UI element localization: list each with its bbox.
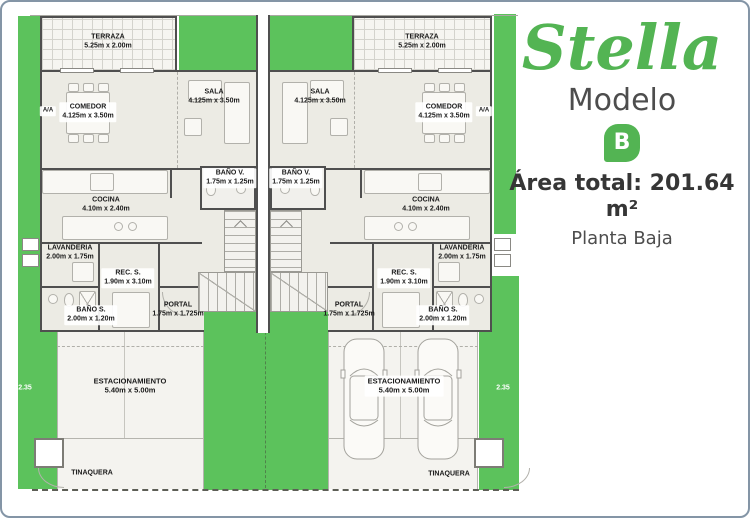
total-area-text: Área total: 201.64 m² xyxy=(502,171,742,223)
chair xyxy=(424,134,435,143)
room-label-terraza-left: TERRAZA 5.25m x 2.00m xyxy=(84,33,131,51)
driveway-left xyxy=(57,332,204,489)
ac-condenser xyxy=(22,254,39,267)
stairs-winder-left xyxy=(198,272,256,312)
room-label-tinaquera-left: TINAQUERA xyxy=(71,470,113,479)
parking-dashed-line xyxy=(57,346,204,347)
door-swing xyxy=(504,468,530,488)
room-name: ESTACIONAMIENTO xyxy=(94,377,167,386)
room-label-tinaquera-right: TINAQUERA xyxy=(428,471,470,480)
room-name: BAÑO S. xyxy=(419,306,466,315)
room-label-terraza-right: TERRAZA 5.25m x 2.00m xyxy=(398,33,445,51)
car-top-view xyxy=(340,336,388,462)
room-label-lavanderia-right: LAVANDERIA 2.00m x 1.75m xyxy=(438,244,485,262)
room-label-portal-right: PORTAL 1.75m x 1.725m xyxy=(323,301,374,319)
room-dims: 1.90m x 3.10m xyxy=(104,278,151,287)
room-name: SALA xyxy=(188,88,239,97)
chair xyxy=(68,83,79,92)
washer xyxy=(72,262,94,282)
tinaquera-closet-left xyxy=(34,438,64,468)
room-dims: 1.75m x 1.725m xyxy=(152,310,203,319)
model-label: Modelo xyxy=(502,84,742,118)
room-label-bano-v-left: BAÑO V. 1.75m x 1.25m xyxy=(203,168,256,188)
wall xyxy=(432,286,492,288)
floorplan-canvas: TERRAZA 5.25m x 2.00m COMEDOR 4.125m x 3… xyxy=(0,0,750,518)
room-name: LAVANDERIA xyxy=(46,244,93,253)
room-dims: 5.25m x 2.00m xyxy=(84,42,131,51)
room-label-bano-v-right: BAÑO V. 1.75m x 1.25m xyxy=(269,168,322,188)
parking-line xyxy=(57,438,204,439)
room-name: TINAQUERA xyxy=(428,471,470,480)
room-name: ESTACIONAMIENTO xyxy=(368,377,441,386)
chair xyxy=(68,134,79,143)
lot-boundary-front xyxy=(32,489,519,491)
chair xyxy=(98,134,109,143)
chair xyxy=(98,83,109,92)
chair xyxy=(454,83,465,92)
room-dims: 1.90m x 3.10m xyxy=(380,278,427,287)
room-label-cocina-left: COCINA 4.10m x 2.40m xyxy=(82,196,129,214)
room-dims: 5.40m x 5.00m xyxy=(94,386,167,395)
dimension-marker-right: 2.35 xyxy=(496,385,510,392)
room-label-bano-s-left: BAÑO S. 2.00m x 1.20m xyxy=(64,305,117,325)
window-mark xyxy=(60,68,94,73)
room-name: REC. S. xyxy=(380,269,427,278)
garden-top-left xyxy=(179,16,256,71)
washer xyxy=(438,262,460,282)
room-label-comedor-right: COMEDOR 4.125m x 3.50m xyxy=(415,102,472,122)
sink xyxy=(408,222,417,231)
chair xyxy=(454,134,465,143)
room-dims: 5.40m x 5.00m xyxy=(368,386,441,395)
room-name: PORTAL xyxy=(152,301,203,310)
room-label-lavanderia-left: LAVANDERIA 2.00m x 1.75m xyxy=(46,244,93,262)
room-name: TERRAZA xyxy=(398,33,445,42)
room-label-aa-right: A/A xyxy=(476,106,492,116)
room-name: BAÑO V. xyxy=(272,169,319,178)
garden-top-right xyxy=(269,16,352,71)
room-name: BAÑO S. xyxy=(67,306,114,315)
model-letter-badge: B xyxy=(604,124,640,162)
room-label-estacionamiento-left: ESTACIONAMIENTO 5.40m x 5.00m xyxy=(94,377,167,396)
room-label-estacionamiento-right: ESTACIONAMIENTO 5.40m x 5.00m xyxy=(365,376,444,397)
room-label-aa-left: A/A xyxy=(40,106,56,116)
room-dims: 4.125m x 3.50m xyxy=(294,97,345,106)
room-name: COCINA xyxy=(402,196,449,205)
room-label-sala-right: SALA 4.125m x 3.50m xyxy=(294,88,345,106)
chair xyxy=(424,83,435,92)
room-dims: 4.10m x 2.40m xyxy=(82,205,129,214)
room-dims: 1.75m x 1.725m xyxy=(323,310,374,319)
room-name: COMEDOR xyxy=(418,103,469,112)
room-divider-dashed xyxy=(177,72,178,168)
room-name: COMEDOR xyxy=(62,103,113,112)
room-dims: 1.75m x 1.25m xyxy=(206,178,253,187)
room-dims: 4.10m x 2.40m xyxy=(402,205,449,214)
car-top-view xyxy=(414,336,462,462)
brand-name: Stella xyxy=(502,12,742,84)
armchair xyxy=(330,118,348,136)
room-dims: 4.125m x 3.50m xyxy=(188,97,239,106)
wall xyxy=(360,170,362,198)
chair xyxy=(83,83,94,92)
room-name: REC. S. xyxy=(104,269,151,278)
room-name: A/A xyxy=(43,107,53,115)
room-label-cocina-right: COCINA 4.10m x 2.40m xyxy=(402,196,449,214)
sink xyxy=(394,222,403,231)
room-label-rec-s-left: REC. S. 1.90m x 3.10m xyxy=(101,268,154,288)
sink xyxy=(474,294,484,304)
room-divider-dashed xyxy=(354,72,355,168)
room-dims: 2.00m x 1.20m xyxy=(67,315,114,324)
room-dims: 5.25m x 2.00m xyxy=(398,42,445,51)
sink xyxy=(48,294,58,304)
wall xyxy=(40,286,100,288)
room-label-sala-left: SALA 4.125m x 3.50m xyxy=(188,88,239,106)
room-label-bano-s-right: BAÑO S. 2.00m x 1.20m xyxy=(416,305,469,325)
title-panel: Stella Modelo B Área total: 201.64 m² Pl… xyxy=(502,12,742,250)
wall xyxy=(328,286,374,288)
room-label-rec-s-right: REC. S. 1.90m x 3.10m xyxy=(377,268,430,288)
party-wall xyxy=(256,15,270,333)
tinaquera-closet-right xyxy=(474,438,504,468)
window-mark xyxy=(378,68,412,73)
stove xyxy=(90,173,114,191)
ac-condenser xyxy=(494,254,511,267)
room-name: A/A xyxy=(479,107,489,115)
kitchen-island xyxy=(364,216,470,240)
dimension-marker-left: 2.35 xyxy=(18,385,32,392)
floor-level-text: Planta Baja xyxy=(502,228,742,250)
ac-condenser xyxy=(22,238,39,251)
stairs-winder-right xyxy=(270,272,328,312)
armchair xyxy=(184,118,202,136)
bed xyxy=(112,292,150,328)
room-dims: 2.00m x 1.20m xyxy=(419,315,466,324)
room-name: COCINA xyxy=(82,196,129,205)
wall xyxy=(170,170,172,198)
room-name: PORTAL xyxy=(323,301,374,310)
room-dims: 2.00m x 1.75m xyxy=(438,253,485,262)
room-label-portal-left: PORTAL 1.75m x 1.725m xyxy=(152,301,203,319)
room-dims: 2.00m x 1.75m xyxy=(46,253,93,262)
chair xyxy=(83,134,94,143)
window-mark xyxy=(438,68,472,73)
sink xyxy=(128,222,137,231)
room-name: BAÑO V. xyxy=(206,169,253,178)
chair xyxy=(439,134,450,143)
room-name: SALA xyxy=(294,88,345,97)
room-dims: 1.75m x 1.25m xyxy=(272,178,319,187)
chair xyxy=(439,83,450,92)
bed xyxy=(382,292,420,328)
room-label-comedor-left: COMEDOR 4.125m x 3.50m xyxy=(59,102,116,122)
room-name: LAVANDERIA xyxy=(438,244,485,253)
room-name: TERRAZA xyxy=(84,33,131,42)
room-name: TINAQUERA xyxy=(71,470,113,479)
window-mark xyxy=(120,68,154,73)
stove xyxy=(418,173,442,191)
sink xyxy=(114,222,123,231)
room-dims: 4.125m x 3.50m xyxy=(418,112,469,121)
room-dims: 4.125m x 3.50m xyxy=(62,112,113,121)
